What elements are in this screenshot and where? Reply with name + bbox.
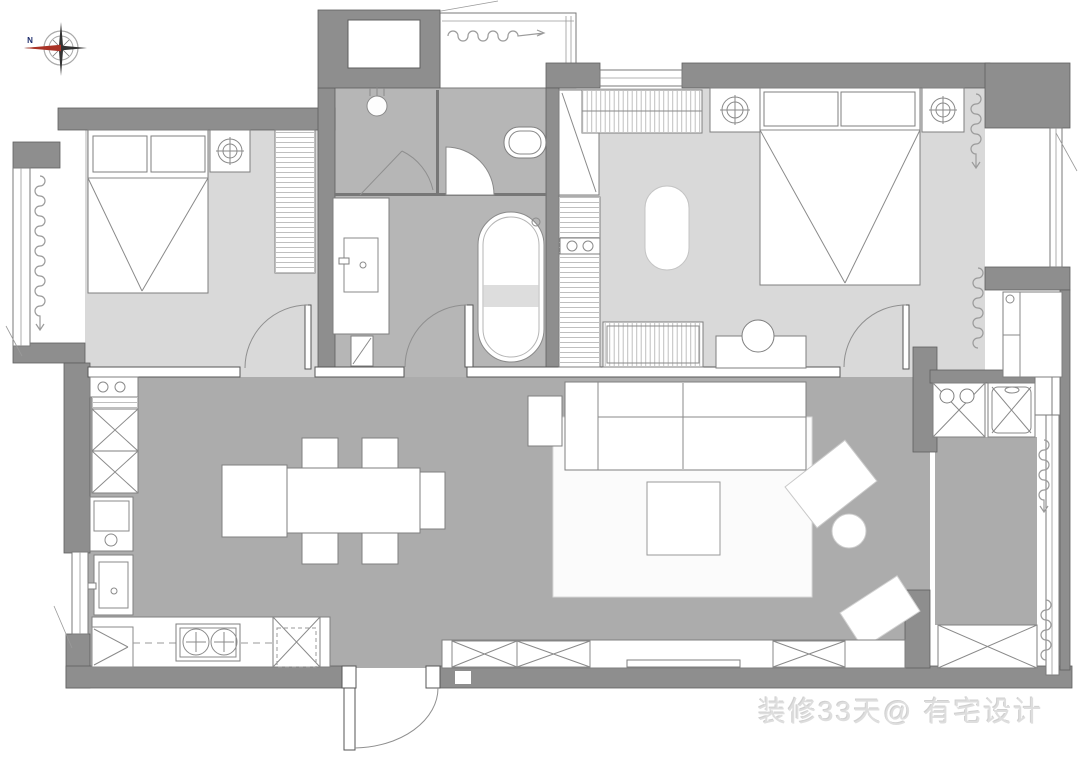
shower-head-icon	[367, 86, 387, 116]
curtain-wave	[35, 176, 45, 330]
door-jamb	[342, 666, 356, 688]
tv	[627, 660, 740, 667]
partition-segment	[88, 367, 240, 377]
kitchen-sink	[88, 555, 133, 615]
wall-segment	[682, 63, 990, 88]
partition-segment	[315, 367, 404, 377]
pill-rug	[645, 186, 689, 270]
door-leaf	[344, 688, 355, 750]
duct-shaft	[348, 20, 420, 68]
pillow	[151, 136, 205, 172]
laundry-window	[1046, 415, 1059, 675]
sink-bowl	[960, 389, 974, 403]
laundry-balcony-floor	[935, 437, 1037, 625]
second-bedroom-door-threshold	[240, 367, 315, 377]
wall-segment-bottom-kitchen	[66, 666, 345, 688]
bathtub	[478, 212, 544, 362]
cabinet-unit	[90, 497, 133, 551]
laundry-window-jamb	[1035, 372, 1052, 415]
door-swing	[355, 688, 438, 748]
wall-segment	[58, 108, 335, 130]
partition-stub	[465, 305, 473, 367]
pillow	[764, 92, 838, 126]
bay-window-second-bedroom	[13, 168, 30, 346]
bathroom-inner-wall	[335, 193, 546, 196]
door-leaf	[903, 305, 909, 369]
compass-north-label: N	[27, 36, 33, 45]
compass-north-needle	[24, 45, 61, 51]
dining-table	[287, 468, 420, 533]
pillow	[93, 136, 147, 172]
side-table	[528, 396, 562, 446]
vanity-counter	[333, 198, 389, 334]
stool	[742, 320, 774, 352]
faucet-icon	[88, 583, 96, 589]
round-side-table	[832, 514, 866, 548]
drawer-unit	[560, 238, 600, 254]
wall-segment	[13, 142, 60, 168]
sink-bowl	[940, 389, 954, 403]
pillow	[841, 92, 915, 126]
compass-rose-icon: N	[24, 22, 87, 76]
counter-appliance	[90, 377, 138, 397]
shower-wc-divider	[436, 90, 439, 195]
bathroom-door-threshold	[404, 367, 467, 377]
sofa	[565, 382, 806, 470]
wall-segment-top-right-corner	[985, 63, 1070, 128]
watermark-text: 装修33天@ 有宅设计	[758, 690, 1058, 730]
wall-segment	[546, 63, 600, 88]
tv-wall-cabinet	[442, 640, 905, 668]
wall-segment	[64, 363, 90, 553]
utility-cabinet	[1003, 292, 1062, 377]
floor-plan-canvas: N 装修33天@ 有宅设计	[0, 0, 1080, 758]
faucet-icon	[339, 258, 349, 264]
master-door-threshold	[840, 367, 910, 377]
wall-segment	[318, 88, 335, 377]
cooktop	[176, 624, 240, 661]
open-window-line	[54, 606, 72, 648]
dining-chair	[418, 472, 445, 529]
wall-segment	[985, 267, 1070, 290]
wall-segment-bottom-living	[440, 666, 1072, 688]
entrance-door	[342, 666, 440, 750]
washing-machine	[988, 383, 1035, 437]
wall-notch	[455, 671, 471, 684]
wall-segment	[546, 88, 559, 377]
door-jamb	[426, 666, 440, 688]
coffee-table	[647, 482, 720, 555]
door-leaf	[305, 305, 311, 369]
toilet	[504, 127, 546, 158]
dining-island	[222, 465, 287, 537]
